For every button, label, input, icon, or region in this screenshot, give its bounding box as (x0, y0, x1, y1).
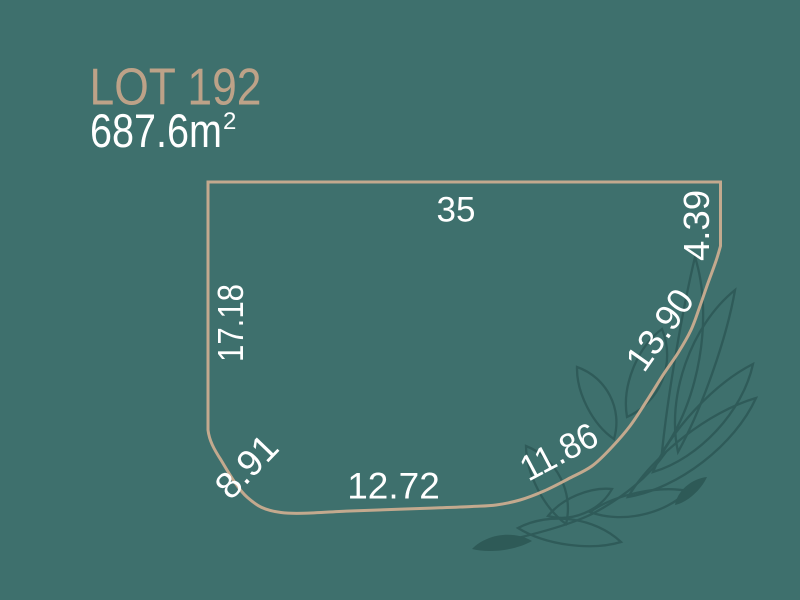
svg-text:17.18: 17.18 (210, 284, 251, 362)
svg-text:12.72: 12.72 (347, 466, 440, 507)
svg-text:35: 35 (437, 191, 476, 230)
svg-text:4.39: 4.39 (676, 190, 717, 261)
svg-text:2: 2 (223, 108, 236, 135)
svg-text:687.6m: 687.6m (90, 104, 222, 157)
